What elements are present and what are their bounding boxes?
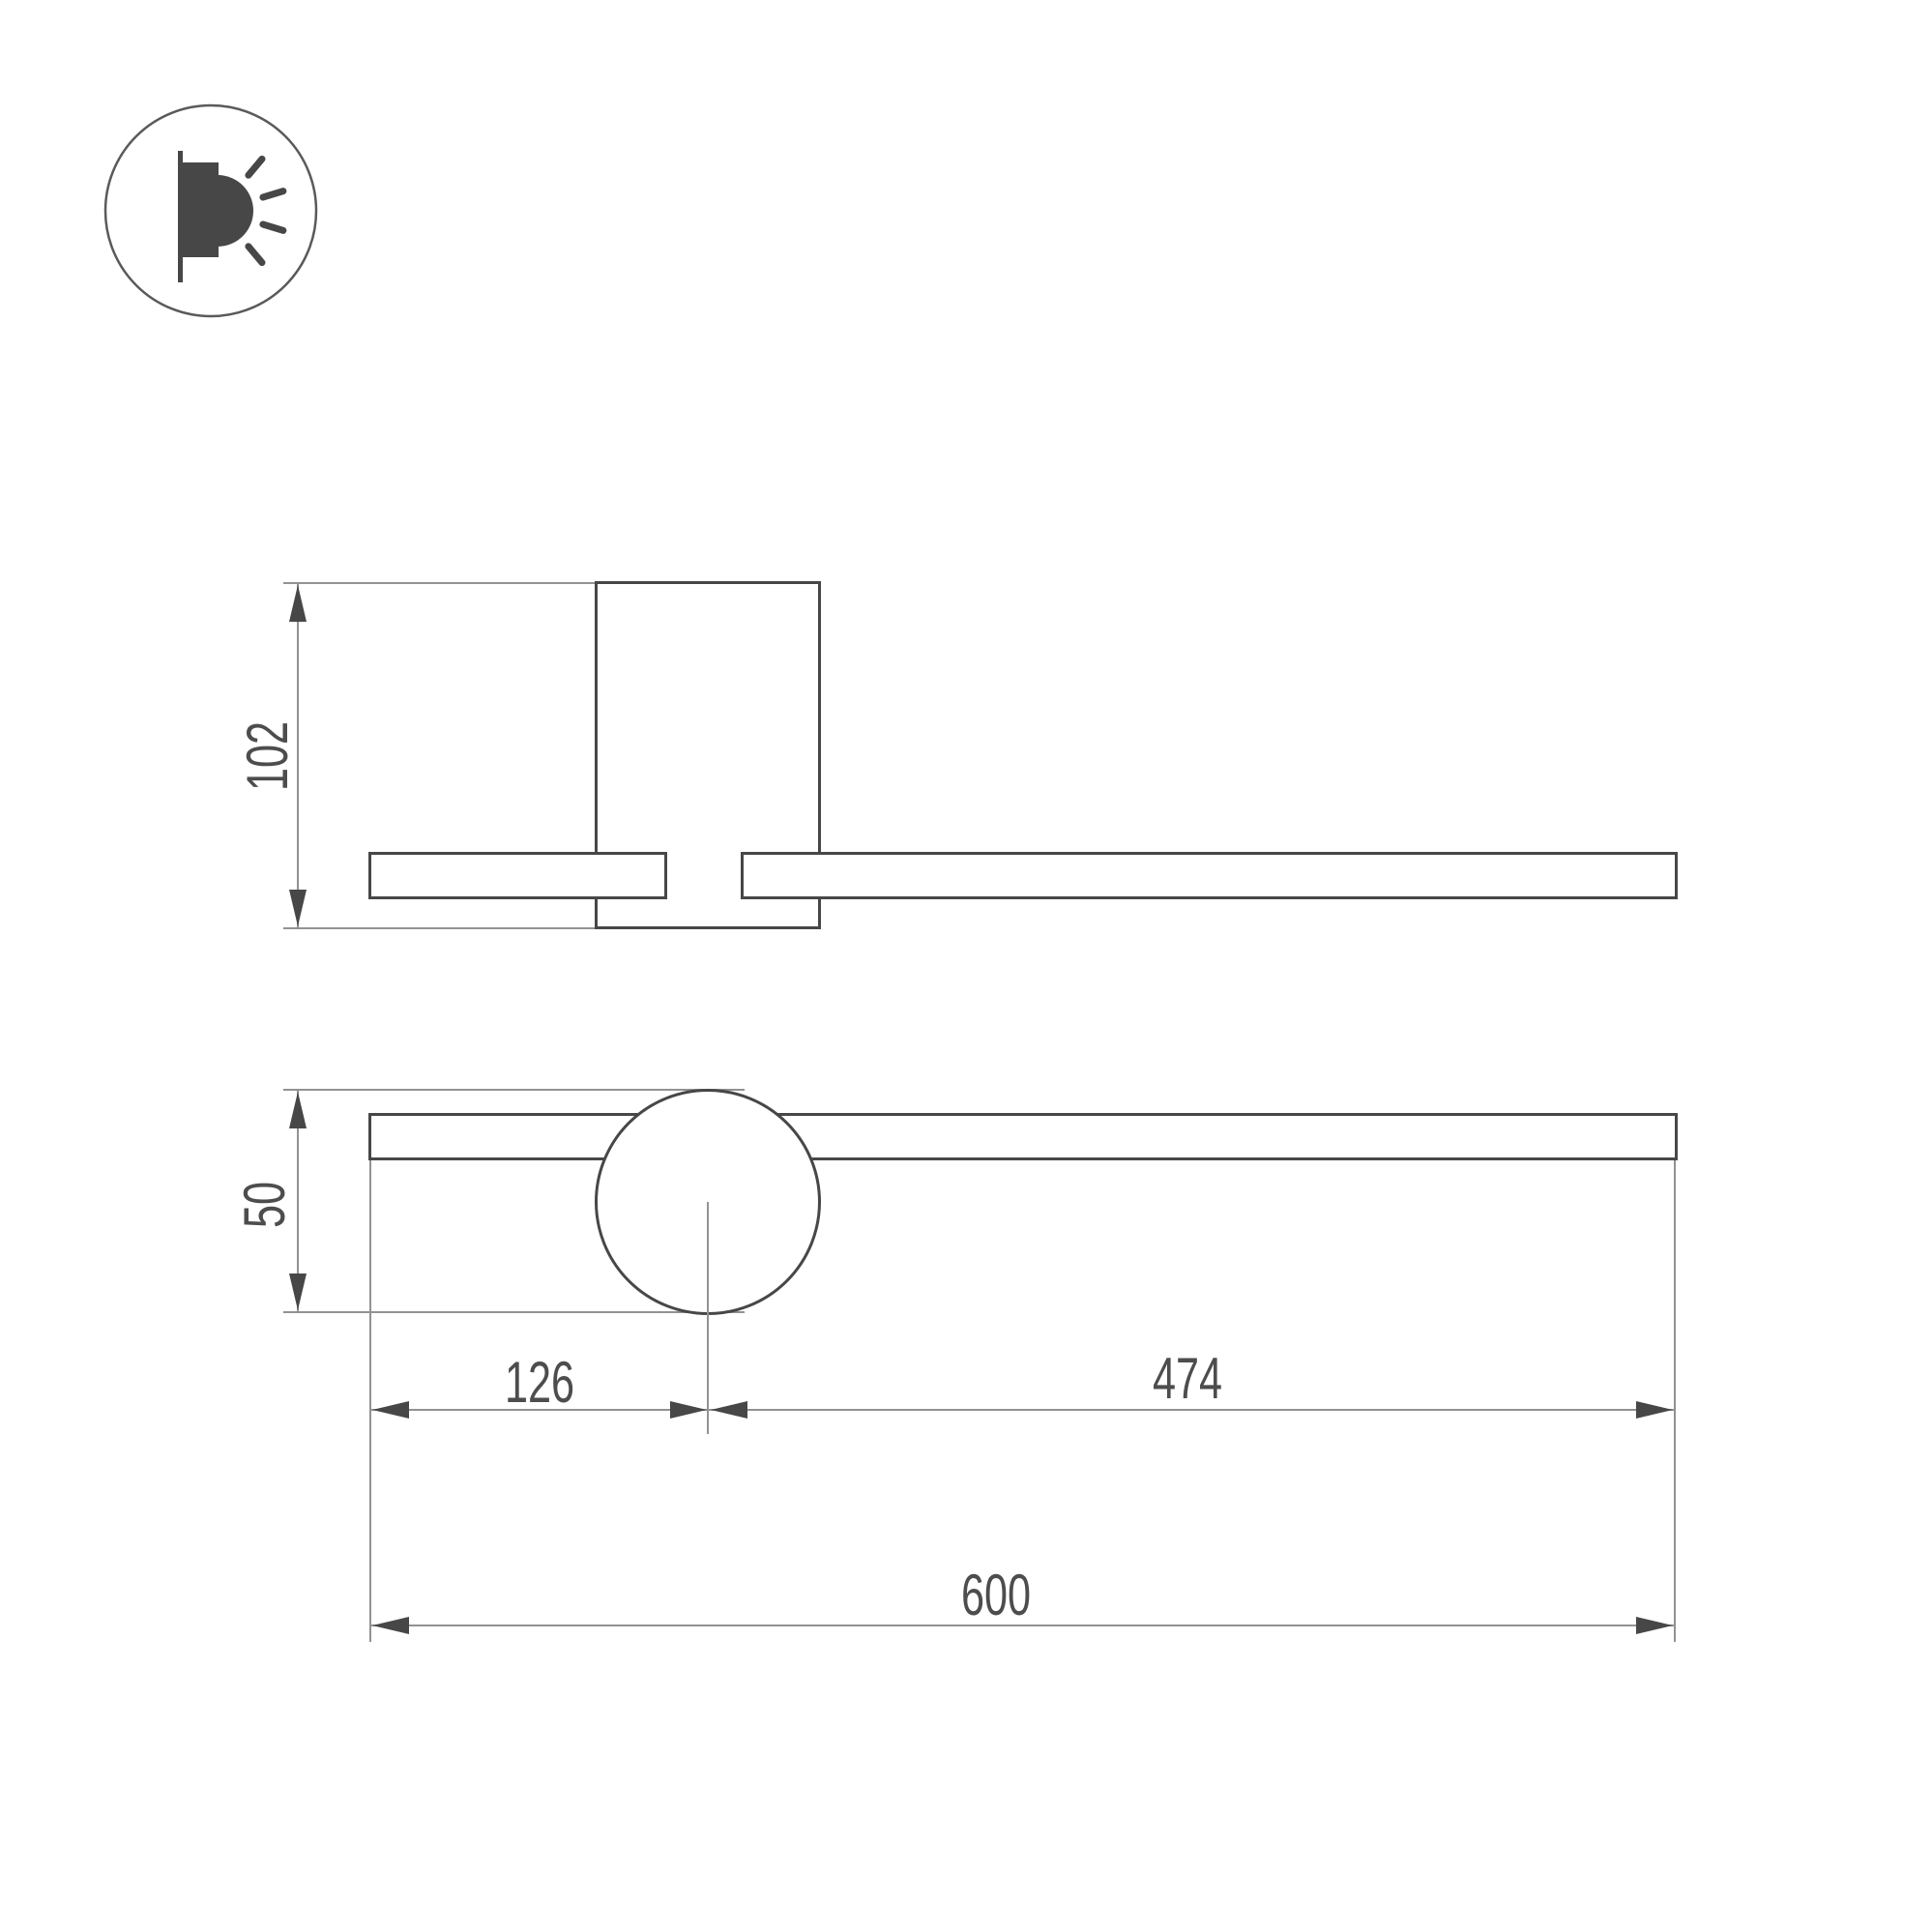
arrowhead-left [372,1617,409,1634]
lamp-body [183,162,219,257]
arrowhead-right [670,1401,707,1419]
extension-line-bottom [283,927,599,929]
extension-line-bottom [283,1311,745,1313]
side-view-bar-front-segment [368,852,667,899]
dimension-label-offset-left: 126 [505,1354,574,1412]
extension-line-top [283,582,599,584]
front-view-bar [368,1113,1678,1160]
arrowhead-left [372,1401,409,1419]
arrowhead-down [289,890,307,926]
sphere-centerline [707,1202,709,1434]
arrowhead-right [1636,1617,1673,1634]
arrowhead-left [711,1401,747,1419]
technical-drawing-canvas: 102 50 126 474 [0,0,1932,1932]
wall-line [178,151,183,282]
wall-light-icon [102,102,319,319]
dimension-label-offset-right: 474 [1153,1350,1222,1408]
dimension-label-total-length: 600 [961,1566,1031,1625]
extension-line-left-end [369,1158,371,1642]
dimension-label-front-height: 50 [236,1182,294,1228]
extension-line-right-end [1674,1158,1676,1642]
side-view-bar-rear-segment [741,852,1678,899]
arrowhead-up [289,585,307,622]
arrowhead-up [289,1092,307,1128]
arrowhead-down [289,1273,307,1310]
dimension-label-side-height: 102 [239,721,297,791]
extension-line-top [283,1089,745,1091]
arrowhead-right [1636,1401,1673,1419]
